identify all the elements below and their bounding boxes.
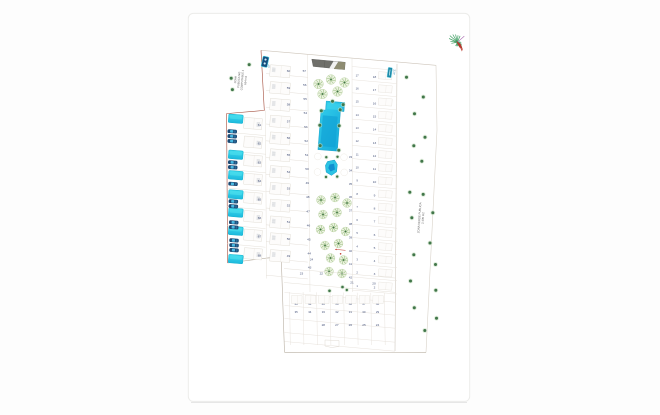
svg-text:66: 66	[258, 216, 262, 220]
svg-text:15: 15	[373, 115, 377, 119]
svg-text:2.435 m2: 2.435 m2	[420, 212, 425, 224]
svg-text:42: 42	[349, 276, 353, 280]
svg-text:54: 54	[287, 170, 291, 174]
svg-text:3: 3	[374, 272, 376, 276]
svg-text:65: 65	[258, 198, 262, 202]
svg-text:25: 25	[362, 323, 366, 327]
svg-text:27: 27	[335, 323, 339, 327]
svg-text:37: 37	[349, 209, 353, 213]
svg-text:56: 56	[303, 83, 307, 87]
svg-text:39: 39	[349, 235, 353, 239]
svg-text:43: 43	[308, 266, 312, 270]
svg-text:9: 9	[374, 193, 376, 197]
svg-text:51: 51	[287, 220, 291, 224]
svg-text:7: 7	[374, 220, 376, 224]
svg-text:51: 51	[305, 153, 309, 157]
svg-text:35: 35	[295, 310, 299, 314]
svg-text:8: 8	[374, 207, 376, 211]
svg-text:ACC: ACC	[392, 69, 396, 75]
svg-text:2: 2	[374, 285, 376, 289]
svg-text:50: 50	[305, 167, 309, 171]
svg-text:18: 18	[373, 75, 377, 79]
svg-text:35: 35	[349, 182, 353, 186]
svg-text:47: 47	[306, 209, 310, 213]
svg-text:56: 56	[287, 136, 291, 140]
svg-text:29: 29	[376, 310, 380, 314]
svg-text:58: 58	[287, 103, 291, 107]
svg-text:46: 46	[307, 223, 311, 227]
svg-text:21: 21	[350, 280, 354, 284]
svg-text:14: 14	[373, 128, 377, 132]
svg-text:52: 52	[304, 139, 308, 143]
svg-text:33: 33	[322, 310, 326, 314]
svg-text:6: 6	[374, 233, 376, 237]
svg-text:52: 52	[287, 203, 291, 207]
svg-text:67: 67	[258, 235, 262, 239]
svg-text:17: 17	[373, 88, 377, 92]
svg-text:64: 64	[258, 179, 262, 183]
svg-text:49: 49	[306, 181, 310, 185]
svg-text:57: 57	[287, 119, 291, 123]
svg-text:55: 55	[303, 97, 307, 101]
svg-text:61: 61	[258, 123, 262, 127]
svg-text:11: 11	[356, 152, 359, 156]
svg-text:34: 34	[349, 168, 353, 172]
svg-text:4: 4	[374, 259, 376, 263]
svg-text:16: 16	[356, 87, 360, 91]
svg-text:31: 31	[349, 310, 353, 314]
svg-text:23: 23	[300, 272, 304, 276]
svg-text:13: 13	[356, 126, 360, 130]
svg-text:59: 59	[287, 86, 291, 90]
svg-text:30: 30	[362, 310, 366, 314]
svg-text:10: 10	[356, 166, 360, 170]
svg-text:41: 41	[349, 262, 353, 266]
svg-text:60: 60	[287, 69, 291, 73]
svg-text:13: 13	[373, 141, 377, 145]
svg-text:10: 10	[373, 180, 377, 184]
svg-text:54: 54	[304, 111, 308, 115]
svg-text:38: 38	[349, 222, 353, 226]
svg-text:40: 40	[349, 249, 353, 253]
svg-text:53: 53	[287, 187, 291, 191]
svg-text:68: 68	[258, 253, 262, 257]
svg-text:57: 57	[303, 69, 307, 73]
svg-text:49: 49	[287, 254, 291, 258]
svg-text:16: 16	[373, 101, 377, 105]
svg-text:33: 33	[349, 155, 353, 159]
svg-text:24: 24	[376, 323, 380, 327]
svg-text:14: 14	[356, 113, 360, 117]
svg-text:36: 36	[349, 195, 353, 199]
svg-text:15: 15	[356, 100, 360, 104]
svg-text:22: 22	[320, 272, 324, 276]
svg-text:55: 55	[287, 153, 291, 157]
svg-text:12: 12	[356, 139, 360, 143]
svg-text:53: 53	[304, 125, 308, 129]
svg-text:11: 11	[373, 167, 376, 171]
svg-text:45: 45	[307, 237, 311, 241]
svg-text:50: 50	[287, 237, 291, 241]
svg-text:34: 34	[308, 310, 312, 314]
svg-text:32: 32	[335, 310, 339, 314]
svg-text:12: 12	[373, 154, 377, 158]
svg-text:24: 24	[310, 257, 314, 261]
svg-text:28: 28	[322, 323, 326, 327]
svg-text:5: 5	[374, 246, 376, 250]
svg-text:48: 48	[306, 195, 310, 199]
svg-text:634 m2: 634 m2	[243, 75, 248, 85]
svg-text:20: 20	[372, 281, 376, 285]
svg-text:26: 26	[349, 323, 353, 327]
svg-text:62: 62	[258, 142, 262, 146]
svg-text:63: 63	[258, 160, 262, 164]
svg-text:17: 17	[356, 73, 360, 77]
svg-text:44: 44	[307, 251, 311, 255]
